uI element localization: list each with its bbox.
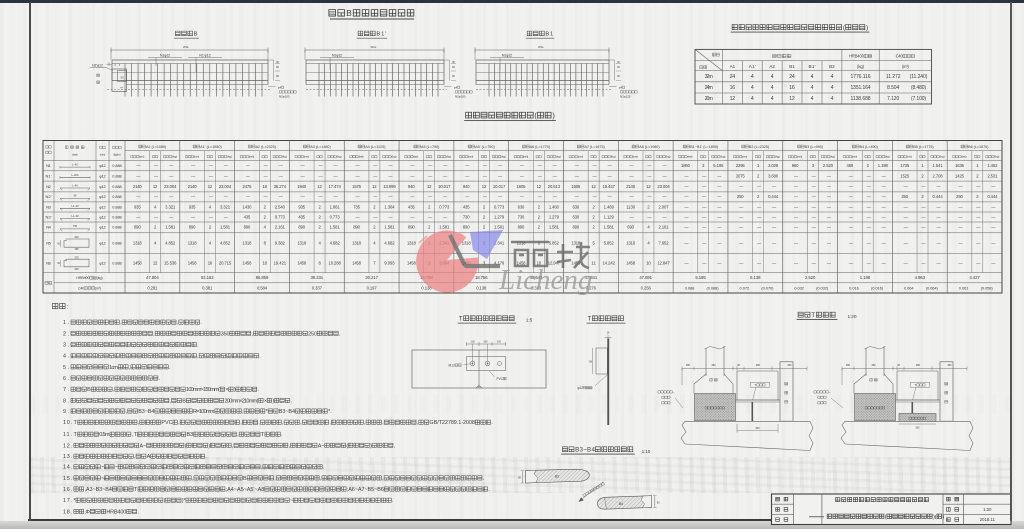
svg-text:165: 165 [74,247,79,251]
svg-text:760: 760 [73,224,78,228]
svg-text:(kg): (kg) [611,155,616,159]
svg-text:A2: A2 [769,64,775,69]
svg-text:(kg): (kg) [994,155,999,159]
svg-text:~: ~ [115,465,118,471]
svg-text:935: 935 [189,204,196,209]
svg-text:.: . [205,454,207,460]
svg-text:32m: 32m [705,74,713,80]
svg-text:,: , [177,320,179,326]
svg-text:(kg): (kg) [940,155,945,159]
svg-text:A1': A1' [749,64,756,69]
svg-text:—: — [443,214,448,219]
svg-text:—: — [717,184,722,189]
svg-text:—: — [958,240,963,245]
svg-text:—: — [991,225,996,230]
svg-text:1351.164: 1351.164 [851,85,871,91]
svg-text:L-40: L-40 [72,162,78,166]
svg-text:—: — [867,240,872,245]
svg-text:—: — [136,214,141,219]
svg-text:4.427: 4.427 [969,275,980,280]
svg-text:—: — [209,173,214,178]
svg-text:(kg): (kg) [172,155,177,159]
svg-text:940: 940 [408,184,415,189]
svg-text:,: , [329,420,331,426]
svg-text:10.017: 10.017 [493,184,506,189]
svg-text:435: 435 [463,204,470,209]
svg-text:—: — [279,163,284,168]
svg-text:B4: B4 [619,502,623,506]
svg-text:N1': N1' [45,173,51,178]
svg-text:18.756: 18.756 [475,275,488,280]
svg-text:T: T [754,383,756,387]
svg-text:(kg): (kg) [885,155,890,159]
svg-text:890: 890 [134,225,141,230]
svg-text:350: 350 [755,427,760,430]
svg-text:—: — [739,184,744,189]
svg-text:—: — [630,214,635,219]
svg-text:1.581: 1.581 [330,225,341,230]
svg-text:90: 90 [120,76,124,80]
svg-text:4: 4 [831,74,834,80]
svg-text:L-40: L-40 [72,183,78,187]
svg-text:—: — [520,163,525,168]
svg-text:—: — [483,163,488,168]
svg-text:17.: 17. [63,498,72,504]
svg-text:,T: ,T [132,432,138,438]
svg-text:,: , [129,365,131,371]
svg-text:T: T [914,383,916,387]
svg-text:N2φ100: N2φ100 [279,95,290,99]
svg-text:—: — [209,214,214,219]
svg-text:—: — [958,184,963,189]
svg-text:0.032: 0.032 [794,285,804,290]
svg-text:—: — [662,214,667,219]
svg-text:—: — [794,240,799,245]
svg-text:T: T [459,316,463,323]
svg-text:—: — [662,163,667,168]
svg-text:—: — [373,163,378,168]
svg-text:—: — [717,194,722,199]
svg-text:1.581: 1.581 [220,225,231,230]
svg-text:1635: 1635 [955,163,965,168]
svg-text:φ12: φ12 [99,225,105,230]
svg-text:3: 3 [812,163,815,168]
svg-text:7.120: 7.120 [887,96,899,102]
svg-text:250: 250 [956,194,963,199]
svg-text:(: ( [534,111,537,120]
svg-text:(0.064): (0.064) [926,285,939,290]
svg-text:24: 24 [730,74,736,80]
svg-text:—: — [154,163,159,168]
svg-text:××: ×× [120,86,123,90]
svg-text:.: . [392,498,394,504]
svg-text:—: — [717,214,722,219]
svg-text:—: — [921,214,926,219]
svg-text:—: — [904,240,909,245]
svg-text:—: — [553,163,558,168]
svg-text:N5: N5 [46,240,52,245]
svg-text:2: 2 [538,214,541,219]
svg-text:(kg): (kg) [282,155,287,159]
svg-text:250: 250 [901,194,908,199]
svg-text:—: — [849,194,854,199]
svg-text:1.129: 1.129 [604,214,615,219]
svg-text:2295: 2295 [736,163,746,168]
svg-text:0.444: 0.444 [768,194,779,199]
svg-text:1.304: 1.304 [384,204,395,209]
svg-text:(m³): (m³) [902,64,910,69]
svg-text:—: — [334,194,339,199]
svg-text:,: , [138,420,140,426]
svg-text:4: 4 [264,225,267,230]
svg-text:): ) [866,25,868,32]
svg-text:4: 4 [751,96,754,102]
svg-text:N6: N6 [46,260,52,265]
svg-text:—: — [882,240,887,245]
svg-text:2.708: 2.708 [933,173,944,178]
svg-text:0.888: 0.888 [112,204,121,209]
svg-text:—: — [867,260,872,265]
svg-text:18: 18 [263,184,268,189]
svg-text:0.444: 0.444 [933,194,944,199]
svg-text:1458: 1458 [297,260,307,265]
svg-text:11.272: 11.272 [886,74,901,80]
svg-text:630: 630 [518,204,525,209]
svg-text:—: — [264,194,269,199]
svg-text:—: — [191,194,196,199]
svg-text:4: 4 [209,240,212,245]
svg-text:1605: 1605 [571,184,581,189]
svg-text:2: 2 [154,225,157,230]
svg-text:2.520: 2.520 [805,275,816,280]
svg-text:90: 90 [74,194,77,198]
svg-text:—: — [355,214,360,219]
svg-text:1.469: 1.469 [604,204,615,209]
svg-text:300: 300 [74,235,79,239]
svg-text:12: 12 [153,184,158,189]
svg-text:10.288: 10.288 [328,260,341,265]
svg-text:—: — [443,163,448,168]
svg-text:14.: 14. [63,465,72,471]
svg-text:): ) [552,111,554,120]
svg-text:12: 12 [646,184,651,189]
svg-text:2140: 2140 [188,184,198,189]
svg-text:—: — [428,194,433,199]
svg-text:330: 330 [915,427,920,430]
svg-text:~: ~ [101,465,104,471]
svg-text:1138.688: 1138.688 [851,96,871,102]
svg-text:φ12: φ12 [99,240,105,245]
svg-text:—: — [976,260,981,265]
svg-text:1.581: 1.581 [494,225,505,230]
svg-text:940: 940 [463,184,470,189]
svg-text:—: — [936,204,941,209]
svg-text:0.888: 0.888 [112,214,121,219]
svg-text:6.: 6. [63,376,69,382]
svg-text:1318: 1318 [243,240,253,245]
svg-text:4: 4 [811,85,814,91]
svg-text:1318: 1318 [407,240,417,245]
svg-text:0.773: 0.773 [494,204,505,209]
svg-text:φ12: φ12 [99,204,105,209]
svg-text:—: — [136,194,141,199]
svg-text:4.852: 4.852 [220,240,231,245]
svg-text:1318: 1318 [352,240,362,245]
svg-text:φ4: φ4 [454,85,458,89]
svg-text:380: 380 [846,364,851,367]
svg-text:1.460: 1.460 [549,204,560,209]
svg-text:B3~B4: B3~B4 [138,409,154,415]
svg-text:10.: 10. [63,420,72,426]
svg-text:—: — [991,260,996,265]
svg-text:φ12: φ12 [99,214,105,219]
svg-text:—: — [593,163,598,168]
svg-text:2.520: 2.520 [823,163,834,168]
svg-text:435: 435 [408,204,415,209]
svg-text:—: — [191,173,196,178]
svg-text:1776.116: 1776.116 [851,74,871,80]
svg-text:φ12: φ12 [99,260,105,265]
svg-text:(mm): (mm) [194,155,199,159]
svg-text:2.007: 2.007 [658,204,669,209]
svg-text:13.: 13. [63,454,72,460]
svg-text:—: — [794,214,799,219]
svg-text:—: — [921,225,926,230]
svg-text:HRB400: HRB400 [106,509,126,515]
svg-text:.: . [281,432,283,438]
svg-text:—: — [882,225,887,230]
svg-text:4: 4 [831,85,834,91]
svg-text:4.682: 4.682 [330,240,341,245]
svg-text:—: — [976,184,981,189]
svg-text:4: 4 [831,96,834,102]
svg-text:—: — [264,173,269,178]
svg-text:—: — [827,240,832,245]
svg-text:N4: N4 [46,225,52,230]
svg-text:36.274: 36.274 [274,184,287,189]
svg-text:2: 2 [318,214,321,219]
svg-text:23.004: 23.004 [657,184,670,189]
svg-text:(kg): (kg) [97,276,103,280]
svg-text:11.: 11. [63,432,72,438]
svg-text:(11.240): (11.240) [910,74,928,80]
svg-text:0.773: 0.773 [439,204,450,209]
svg-text:90: 90 [57,263,60,265]
svg-text:350: 350 [221,331,230,337]
svg-text:1458: 1458 [243,260,253,265]
svg-text:(m³): (m³) [95,286,101,290]
svg-text:—: — [794,260,799,265]
svg-text:B1': B1' [809,64,816,69]
svg-text:,: , [237,432,239,438]
svg-text:A1' (L=1080): A1' (L=1080) [200,145,221,149]
svg-text:(kg): (kg) [337,155,342,159]
svg-text:—: — [553,194,558,199]
svg-text:14: 14 [607,332,610,335]
svg-text:(kg): (kg) [227,155,232,159]
svg-text:.: . [483,476,485,482]
svg-text:—: — [647,194,652,199]
svg-text:1.581: 1.581 [549,225,560,230]
svg-text:—: — [575,163,580,168]
svg-text:—: — [520,194,525,199]
svg-text:—: — [827,173,832,178]
svg-text:53.163: 53.163 [201,275,214,280]
svg-text:~: ~ [290,498,293,504]
svg-text:(: ( [185,443,187,449]
svg-text:.: . [394,443,396,449]
svg-text:—: — [958,204,963,209]
svg-text:—: — [428,214,433,219]
svg-text:690: 690 [627,225,634,230]
svg-text:4: 4 [373,240,376,245]
svg-text:1318: 1318 [462,240,472,245]
svg-text:—: — [684,260,689,265]
svg-text:2: 2 [483,204,486,209]
svg-text:—: — [812,214,817,219]
svg-text:47.804: 47.804 [146,275,159,280]
svg-text:890: 890 [518,225,525,230]
svg-text:—: — [684,194,689,199]
svg-text:—: — [976,225,981,230]
svg-text:(mm): (mm) [797,155,802,159]
svg-text:—: — [373,214,378,219]
svg-text:0.888: 0.888 [112,194,121,199]
svg-text:—: — [373,194,378,199]
svg-text:~: ~ [101,476,104,482]
svg-text:B1': B1' [376,32,386,38]
svg-text:—: — [757,184,762,189]
svg-text:—: — [388,173,393,178]
svg-text:0.138: 0.138 [476,285,487,290]
svg-text:.: . [197,343,199,349]
svg-text:A~: A~ [318,443,325,449]
svg-text:2: 2 [428,204,431,209]
svg-text:435: 435 [244,214,251,219]
svg-text:—: — [520,173,525,178]
svg-text:N2φ100: N2φ100 [455,95,466,99]
svg-text:2: 2 [538,225,541,230]
svg-text:1:20: 1:20 [847,314,856,320]
svg-text:0.064: 0.064 [904,285,914,290]
svg-text:18: 18 [263,260,268,265]
svg-text:—: — [136,173,141,178]
svg-text:—: — [772,240,777,245]
svg-text:B: B [182,398,186,404]
svg-text:935: 935 [134,204,141,209]
svg-text:47.691: 47.691 [639,275,652,280]
svg-text:—: — [772,225,777,230]
svg-text:—: — [772,260,777,265]
svg-text:—: — [443,173,448,178]
svg-text:0.888: 0.888 [112,184,121,189]
svg-text:1.198: 1.198 [878,163,889,168]
svg-text:5.: 5. [63,365,69,371]
svg-text:1.661: 1.661 [330,204,341,209]
svg-text:250: 250 [308,331,317,337]
svg-text:2: 2 [483,214,486,219]
svg-text:(mm): (mm) [72,153,77,157]
svg-text:4: 4 [154,240,157,245]
svg-text:90: 90 [518,476,521,479]
svg-text:—: — [904,184,909,189]
svg-text:—: — [224,173,229,178]
svg-text:—: — [717,260,722,265]
svg-text:1: 1 [757,163,760,168]
svg-text:12.: 12. [63,443,72,449]
svg-text:—: — [794,184,799,189]
svg-text:—: — [647,214,652,219]
svg-text:(0.016): (0.016) [871,285,884,290]
svg-text:—: — [630,163,635,168]
svg-text:N3: N3 [46,204,52,209]
svg-text:3.321: 3.321 [220,204,231,209]
svg-text:4.682: 4.682 [384,240,395,245]
svg-text:N1φ12: N1φ12 [160,53,170,57]
svg-text:.: . [169,365,171,371]
svg-text:7.652: 7.652 [658,240,669,245]
svg-text:): ) [272,398,274,404]
svg-text:2475: 2475 [243,184,253,189]
svg-text:—: — [812,194,817,199]
svg-text:—: — [410,194,415,199]
svg-text:17.474: 17.474 [328,184,341,189]
svg-text:): ) [234,387,236,393]
svg-text:)(: )( [933,514,937,520]
svg-text:—: — [921,184,926,189]
svg-text:(kg): (kg) [775,155,780,159]
svg-text:—: — [301,163,306,168]
svg-text:15.536: 15.536 [164,260,177,265]
svg-text:12: 12 [372,184,377,189]
svg-text:1860: 1860 [681,163,691,168]
svg-text:(mm): (mm) [852,155,857,159]
svg-text:1458: 1458 [626,260,636,265]
svg-text:B5 (L=1775): B5 (L=1775) [913,145,933,149]
svg-text:1940: 1940 [297,184,307,189]
svg-text:1cm: 1cm [109,365,118,371]
svg-text:—: — [575,173,580,178]
svg-text:—: — [630,194,635,199]
svg-text:435: 435 [298,214,305,219]
svg-text:—: — [191,214,196,219]
svg-text:.: . [159,376,161,382]
svg-text:1458: 1458 [133,260,143,265]
svg-text:—: — [812,184,817,189]
svg-text:—: — [882,260,887,265]
svg-text:,: , [134,454,136,460]
svg-text:—: — [717,204,722,209]
svg-text:,: , [126,409,128,415]
svg-text:.: . [339,331,341,337]
svg-text:2.181: 2.181 [658,225,669,230]
svg-text:1:10: 1:10 [642,449,651,454]
svg-text:—: — [936,240,941,245]
svg-text:—: — [757,225,762,230]
svg-text:1.581: 1.581 [604,225,615,230]
svg-text:—: — [904,225,909,230]
svg-text:2: 2 [318,225,321,230]
svg-text:—: — [684,184,689,189]
svg-text:—: — [904,260,909,265]
svg-text:WbL: WbL [538,45,544,49]
svg-text:—: — [169,163,174,168]
svg-text:16: 16 [789,85,795,91]
svg-text:—: — [867,184,872,189]
svg-text:1.: 1. [63,320,69,326]
svg-text:2.531: 2.531 [987,173,998,178]
svg-text:—: — [702,225,707,230]
